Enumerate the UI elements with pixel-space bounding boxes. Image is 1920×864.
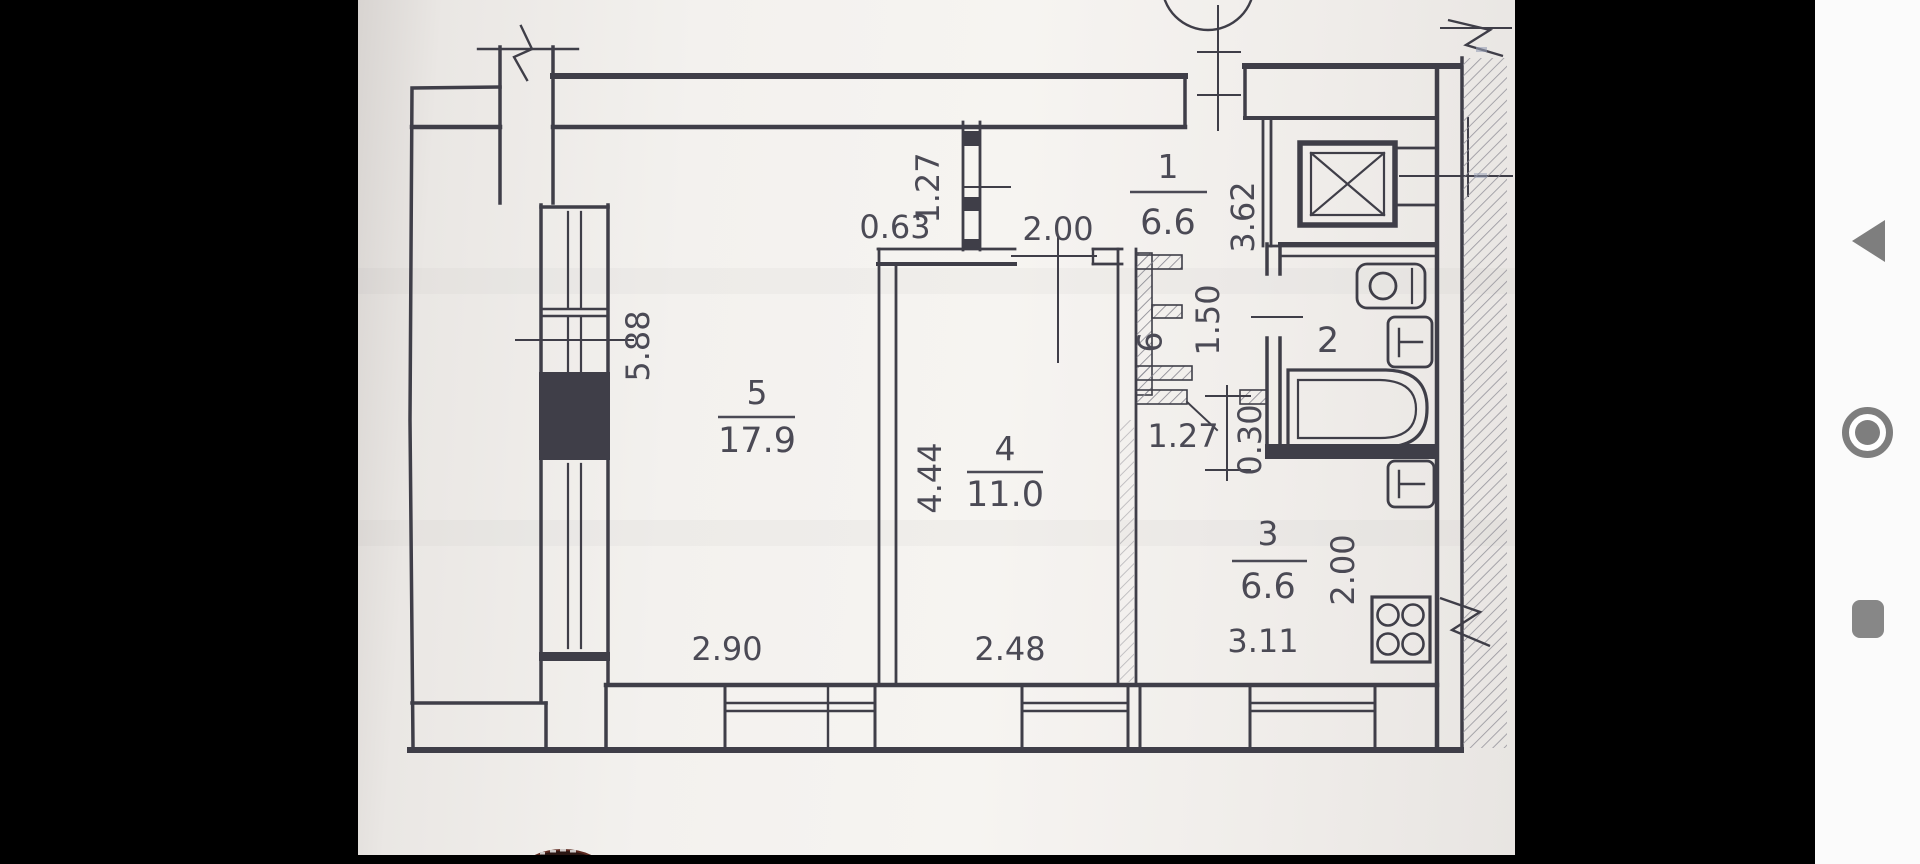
- dim-1-27-top: 1.27: [909, 152, 947, 223]
- wall-break-column: [478, 26, 578, 203]
- dim-4-44: 4.44: [911, 442, 949, 513]
- bathtub-icon: [1288, 370, 1427, 447]
- towel-rail-icon: [1388, 317, 1432, 367]
- room2-number: 2: [1317, 321, 1339, 361]
- sink-icon: [1357, 264, 1425, 308]
- room4-number: 4: [995, 429, 1016, 468]
- room6-number: 6: [1131, 332, 1170, 353]
- dim-5-88: 5.88: [619, 310, 657, 381]
- room5-area: 17.9: [718, 421, 796, 461]
- dim-2-48: 2.48: [974, 630, 1045, 668]
- back-button[interactable]: [1852, 220, 1885, 262]
- room1-area: 6.6: [1140, 203, 1196, 243]
- dim-1-50: 1.50: [1189, 284, 1227, 355]
- room1-number: 1: [1158, 147, 1179, 186]
- dim-3-11: 3.11: [1227, 622, 1298, 660]
- left-window-wall: [539, 205, 610, 702]
- stove-icon: [1372, 597, 1430, 662]
- dim-3-62: 3.62: [1224, 181, 1262, 252]
- elevator-shaft-icon: [1263, 118, 1437, 246]
- dim-0-30: 0.30: [1231, 404, 1269, 475]
- dim-2-00-kitchen: 2.00: [1324, 534, 1362, 605]
- dim-2-90: 2.90: [691, 630, 762, 668]
- recents-button[interactable]: [1852, 600, 1884, 638]
- entrance-axis: [1162, 0, 1512, 196]
- dim-1-27-corridor: 1.27: [1147, 417, 1218, 455]
- page-bottom-print: [515, 849, 611, 855]
- room5-number: 5: [747, 373, 768, 412]
- room4-area: 11.0: [966, 475, 1044, 515]
- glazed-partition: [963, 122, 1010, 250]
- android-nav-bar: [1815, 0, 1920, 864]
- recents-square-icon: [1852, 600, 1884, 638]
- dim-2-00-hall: 2.00: [1022, 210, 1093, 248]
- home-button[interactable]: [1842, 407, 1893, 458]
- bottom-windows: [725, 685, 1437, 750]
- floorplan-drawing: 5 17.9 4 11.0 1 6.6 3 6.6 2 6 0.63 2.00 …: [358, 0, 1515, 855]
- device-screen: 5 17.9 4 11.0 1 6.6 3 6.6 2 6 0.63 2.00 …: [0, 0, 1920, 864]
- room3-area: 6.6: [1240, 567, 1296, 607]
- towel-rail-2-icon: [1388, 461, 1434, 507]
- photo-viewport[interactable]: 5 17.9 4 11.0 1 6.6 3 6.6 2 6 0.63 2.00 …: [358, 0, 1515, 855]
- room3-number: 3: [1258, 514, 1279, 553]
- home-circle-icon: [1842, 407, 1893, 458]
- right-wall-hatch: [1440, 20, 1512, 748]
- back-triangle-icon: [1852, 220, 1885, 262]
